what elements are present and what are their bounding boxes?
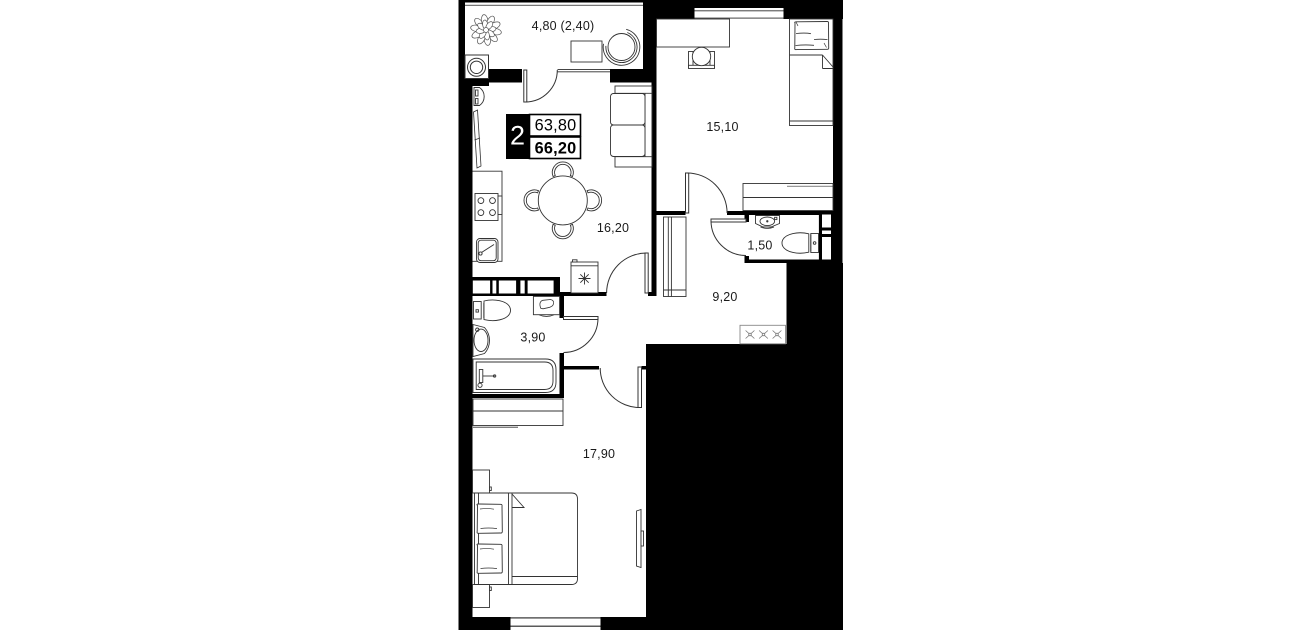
- svg-text:17,90: 17,90: [583, 447, 615, 461]
- svg-text:66,20: 66,20: [535, 140, 577, 158]
- svg-text:63,80: 63,80: [535, 117, 577, 135]
- svg-text:9,20: 9,20: [712, 290, 737, 304]
- svg-text:2: 2: [510, 121, 525, 151]
- svg-text:3,90: 3,90: [520, 331, 545, 345]
- svg-text:4,80 (2,40): 4,80 (2,40): [532, 19, 595, 33]
- svg-text:1,50: 1,50: [747, 239, 772, 253]
- svg-text:15,10: 15,10: [706, 120, 738, 134]
- svg-text:16,20: 16,20: [597, 221, 629, 235]
